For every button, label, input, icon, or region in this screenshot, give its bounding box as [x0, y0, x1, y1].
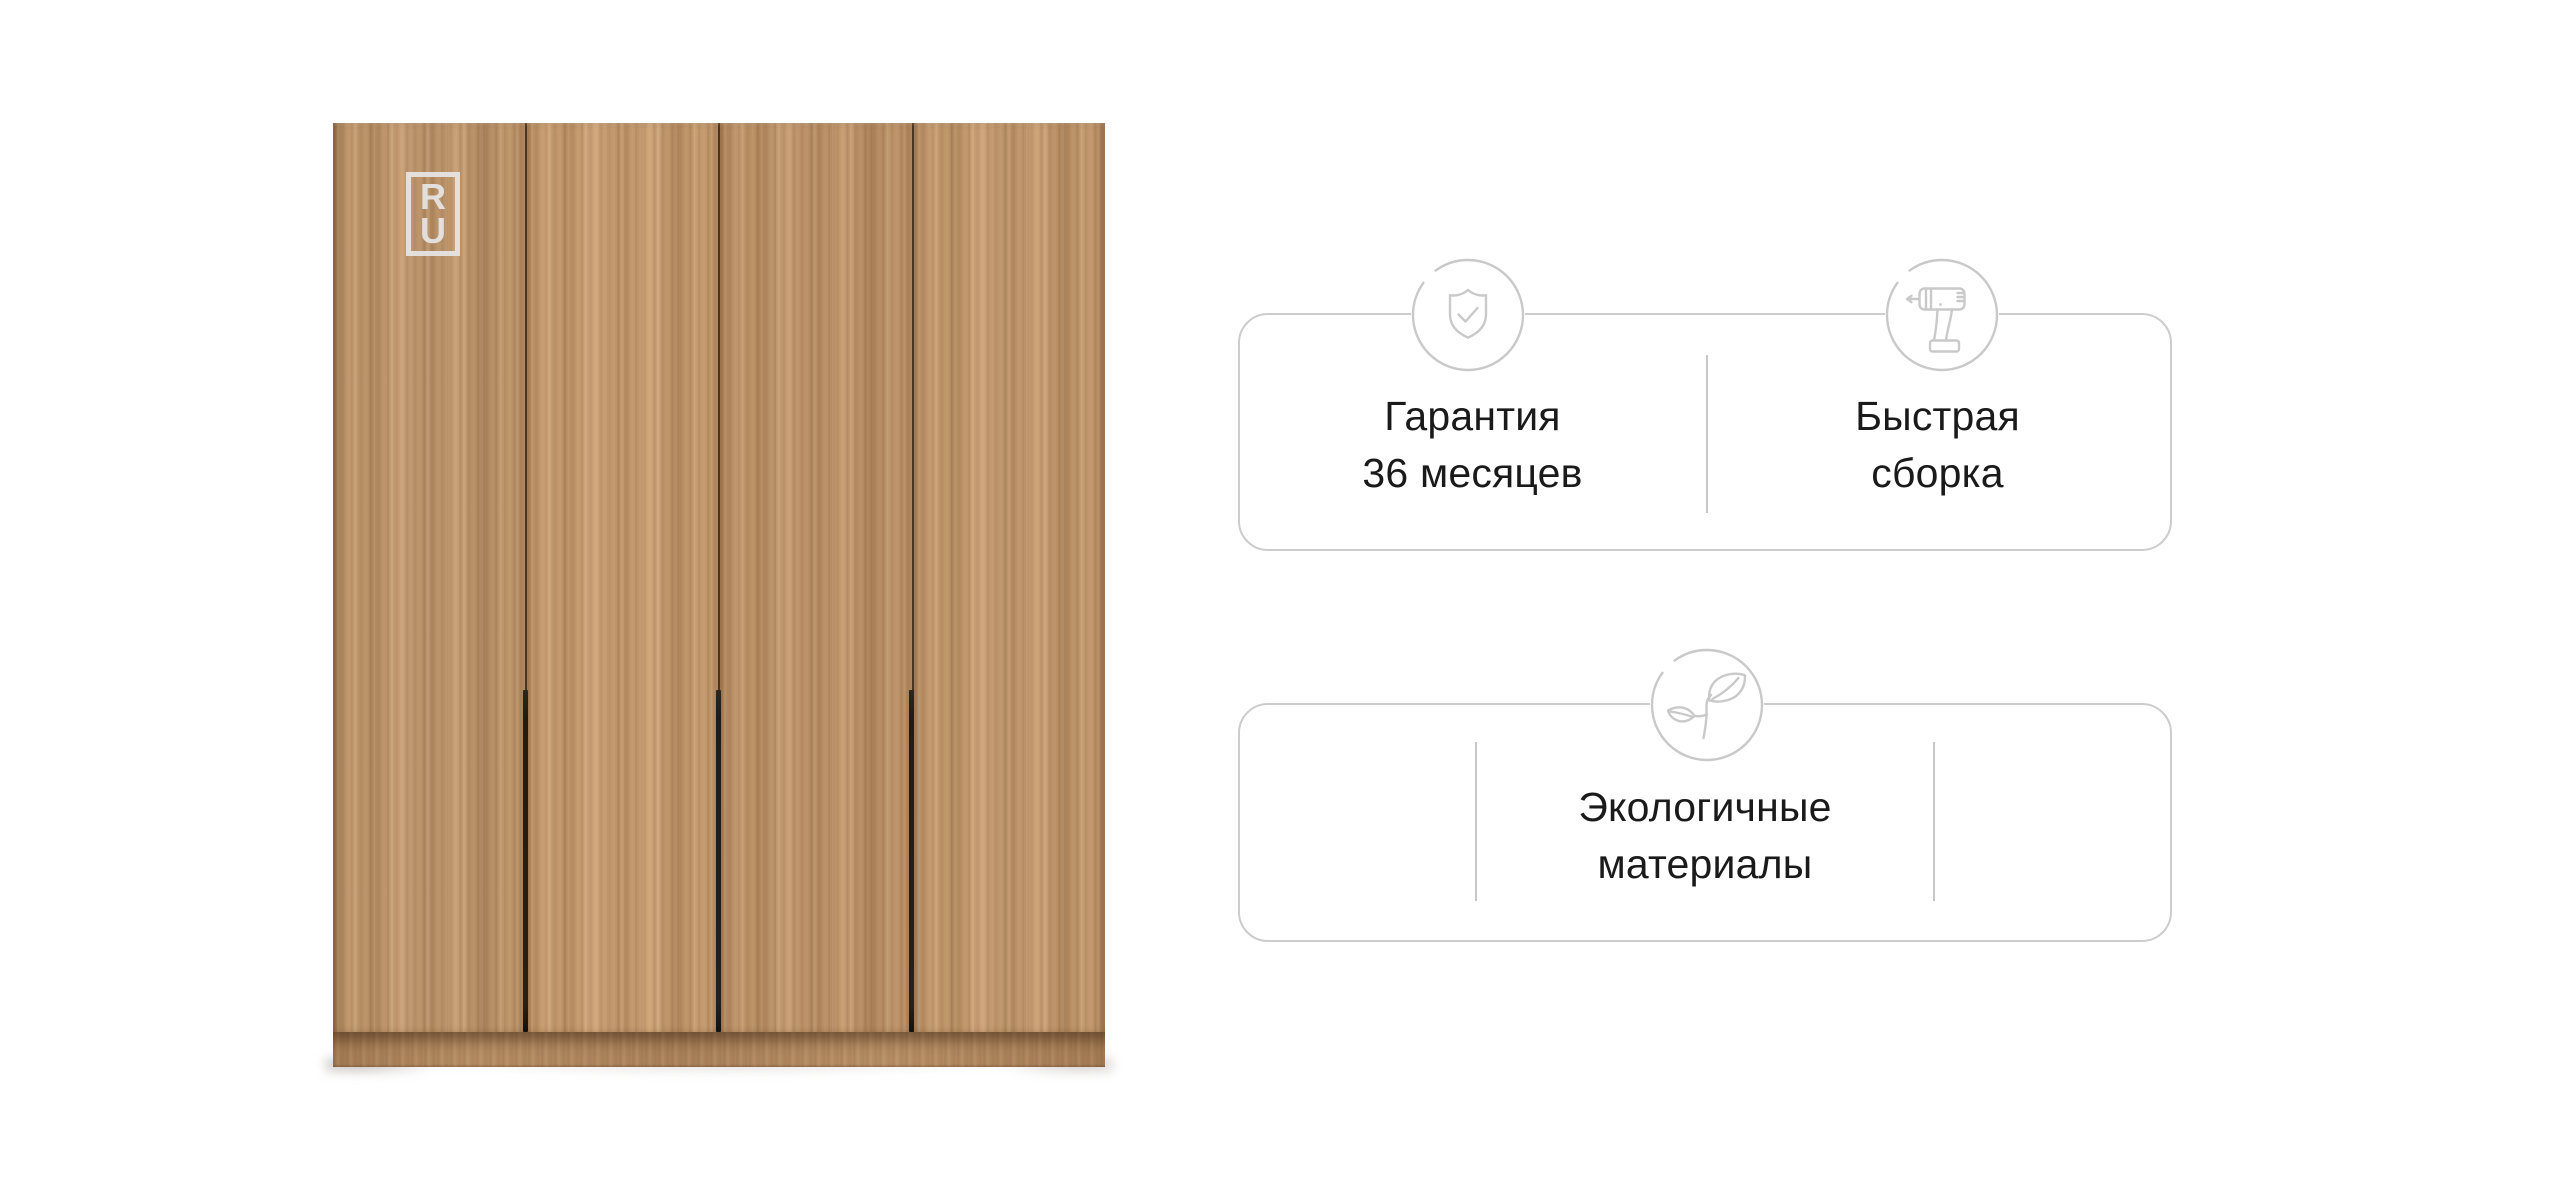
- feature-text-line: материалы: [1240, 836, 2170, 893]
- wardrobe-handle: [716, 690, 721, 1032]
- feature-text-line: Быстрая: [1705, 388, 2170, 445]
- feature-assembly: Быстрая сборка: [1705, 388, 2170, 502]
- wardrobe-doors: R U: [333, 123, 1105, 1032]
- wardrobe-plinth: [333, 1032, 1105, 1067]
- brand-letter: R: [420, 180, 446, 214]
- feature-text-line: Экологичные: [1240, 779, 2170, 836]
- feature-text-line: сборка: [1705, 445, 2170, 502]
- wardrobe-door: [912, 123, 1106, 1032]
- brand-letter: U: [420, 214, 446, 248]
- wardrobe-door: [333, 123, 525, 1032]
- wardrobe-door: [718, 123, 912, 1032]
- wardrobe-photo: R U: [333, 123, 1105, 1067]
- feature-warranty: Гарантия 36 месяцев: [1240, 388, 1705, 502]
- feature-card-eco: Экологичные материалы: [1238, 703, 2172, 942]
- feature-text-line: Гарантия: [1240, 388, 1705, 445]
- vertical-divider: [1706, 355, 1708, 513]
- page: R U: [0, 0, 2560, 1188]
- feature-text-line: 36 месяцев: [1240, 445, 1705, 502]
- wardrobe-door: [525, 123, 719, 1032]
- feature-card-warranty-assembly: Гарантия 36 месяцев Быстрая сборка: [1238, 313, 2172, 551]
- feature-eco-materials: Экологичные материалы: [1240, 779, 2170, 893]
- wardrobe-handle: [909, 690, 914, 1032]
- brand-watermark: R U: [406, 172, 460, 256]
- wardrobe-handle: [523, 690, 528, 1032]
